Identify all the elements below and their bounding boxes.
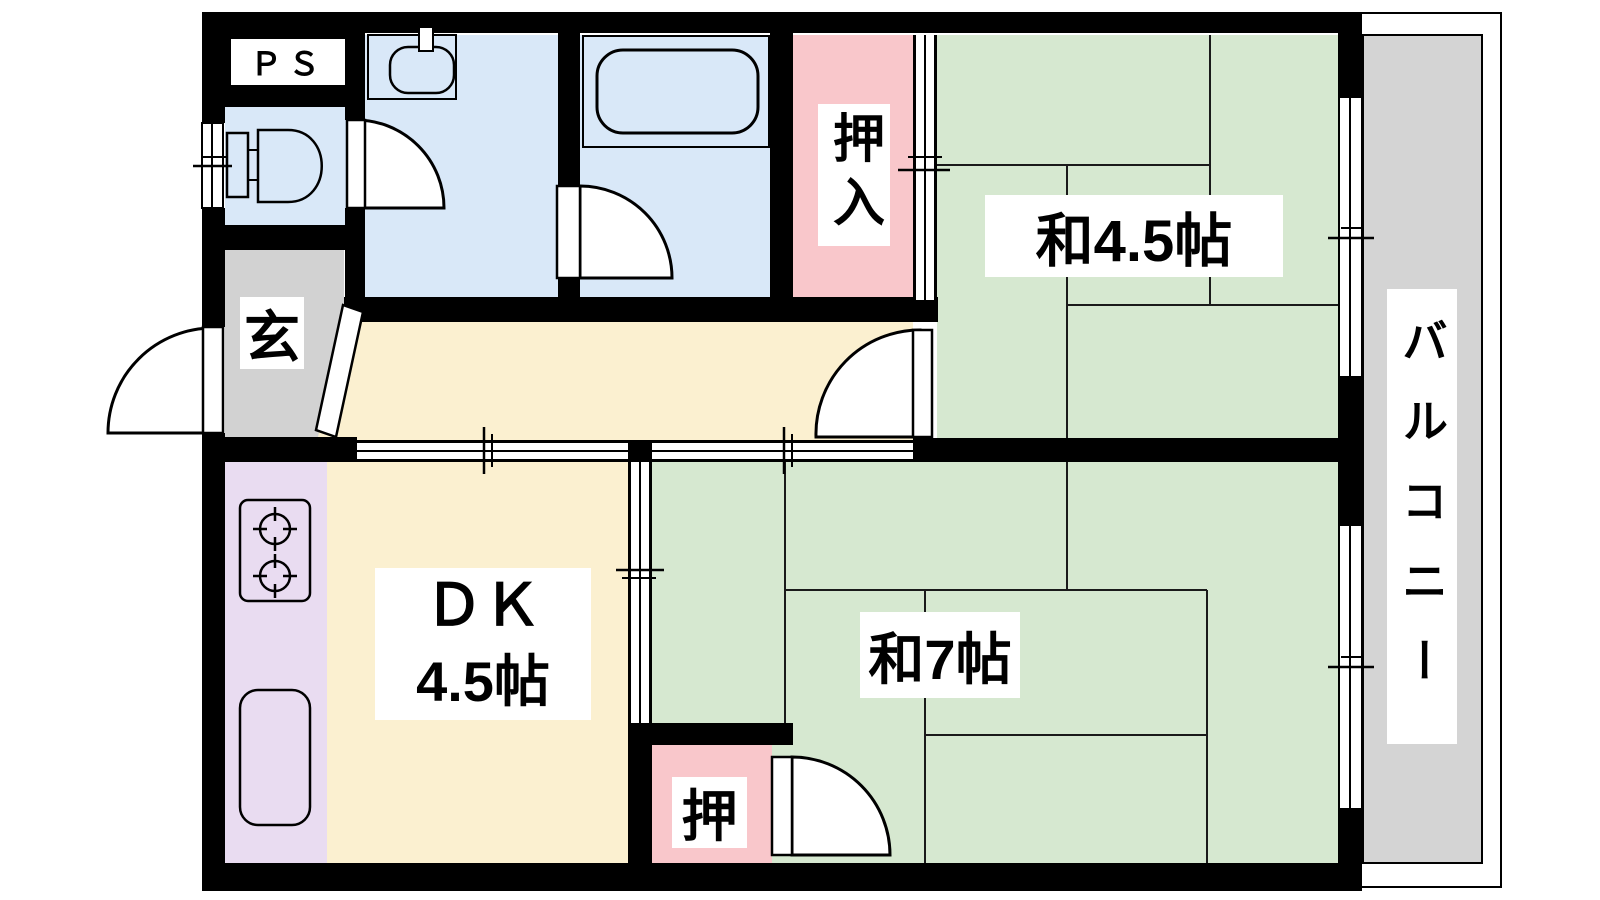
- genkan-label: 玄: [240, 297, 304, 369]
- entry-door: [108, 327, 223, 433]
- washroom-door: [347, 120, 444, 208]
- bathroom-door: [557, 186, 672, 278]
- dk-size: 4.5帖: [416, 644, 550, 720]
- wall-bevel: [770, 723, 793, 745]
- dk-label: ＤＫ 4.5帖: [375, 568, 591, 720]
- oshi-door: [772, 757, 890, 855]
- balcony-label: バルコニー: [1387, 289, 1457, 744]
- oshi-label: 押: [672, 777, 747, 848]
- vector-overlay: [0, 0, 1600, 900]
- toilet-icon: [227, 130, 322, 202]
- stove-icon: [240, 500, 310, 601]
- ps-label-box: ＰＳ: [228, 36, 348, 88]
- bathtub-icon: [583, 36, 769, 147]
- washbasin-icon: [368, 27, 456, 99]
- window-balcony-wa45: [1328, 97, 1374, 377]
- dk-name: ＤＫ: [425, 568, 541, 644]
- ps-label: ＰＳ: [250, 39, 326, 85]
- window-balcony-wa7: [1328, 525, 1374, 809]
- wa7-label: 和7帖: [860, 612, 1020, 698]
- kitchen-sink-icon: [240, 690, 310, 825]
- wa45-door: [816, 330, 932, 437]
- floorplan: ＰＳ 玄 押入 和4.5帖 和7帖 ＤＫ 4.5帖 バルコニー 押: [0, 0, 1600, 900]
- oshiire-label: 押入: [818, 104, 890, 246]
- wa45-label: 和4.5帖: [985, 195, 1283, 277]
